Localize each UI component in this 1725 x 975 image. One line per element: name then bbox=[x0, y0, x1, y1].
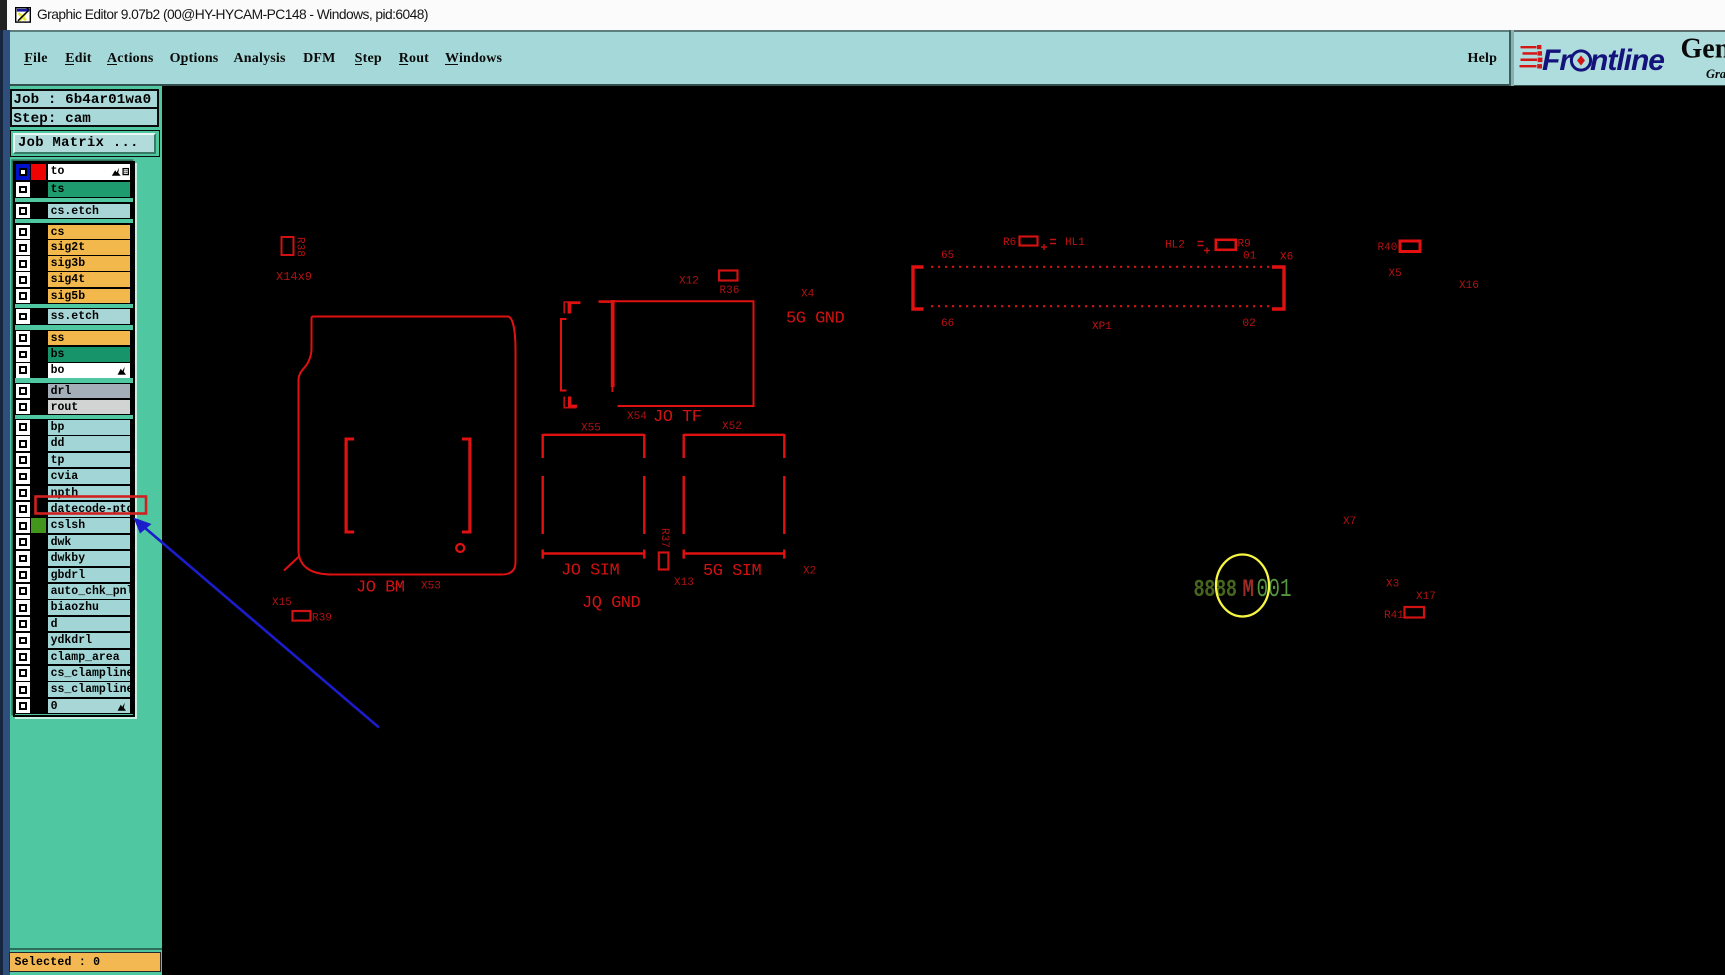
svg-text:JQ GND: JQ GND bbox=[582, 594, 641, 613]
svg-text:X6: X6 bbox=[1280, 252, 1293, 264]
svg-text:65: 65 bbox=[941, 250, 954, 262]
svg-text:HL2: HL2 bbox=[1165, 240, 1185, 252]
svg-text:X13: X13 bbox=[674, 577, 694, 589]
svg-text:XP1: XP1 bbox=[1092, 321, 1112, 333]
svg-text:X15: X15 bbox=[272, 597, 292, 609]
svg-text:X53: X53 bbox=[421, 581, 441, 593]
svg-text:X5: X5 bbox=[1389, 268, 1402, 280]
svg-text:X12: X12 bbox=[679, 276, 699, 288]
svg-text:R38: R38 bbox=[294, 237, 306, 257]
svg-text:R6: R6 bbox=[1003, 237, 1016, 249]
svg-text:X3: X3 bbox=[1386, 579, 1399, 591]
svg-text:JO BM: JO BM bbox=[356, 579, 405, 598]
svg-text:X52: X52 bbox=[722, 421, 742, 433]
svg-text:001: 001 bbox=[1257, 575, 1292, 604]
svg-text:X7: X7 bbox=[1343, 516, 1356, 528]
svg-text:R9: R9 bbox=[1238, 239, 1251, 251]
svg-text:X14x9: X14x9 bbox=[276, 270, 312, 284]
svg-text:X54: X54 bbox=[627, 411, 647, 423]
svg-text:R40: R40 bbox=[1378, 242, 1398, 254]
svg-text:R36: R36 bbox=[720, 285, 740, 297]
svg-text:5G GND: 5G GND bbox=[786, 310, 845, 329]
svg-text:HL1: HL1 bbox=[1065, 237, 1085, 249]
svg-text:X55: X55 bbox=[581, 423, 601, 435]
svg-text:JO SIM: JO SIM bbox=[561, 562, 620, 581]
svg-text:5G SIM: 5G SIM bbox=[703, 562, 762, 581]
svg-text:R41: R41 bbox=[1384, 610, 1404, 622]
svg-text:R37: R37 bbox=[658, 528, 670, 548]
svg-text:02: 02 bbox=[1243, 318, 1256, 330]
svg-text:JO TF: JO TF bbox=[653, 408, 702, 427]
svg-text:X4: X4 bbox=[801, 289, 815, 301]
svg-text:R39: R39 bbox=[312, 613, 332, 625]
svg-text:X17: X17 bbox=[1416, 591, 1436, 603]
svg-text:X16: X16 bbox=[1459, 280, 1479, 292]
svg-text:M: M bbox=[1243, 575, 1254, 604]
svg-text:66: 66 bbox=[941, 318, 954, 330]
svg-text:X2: X2 bbox=[803, 566, 816, 578]
svg-text:01: 01 bbox=[1243, 251, 1257, 263]
